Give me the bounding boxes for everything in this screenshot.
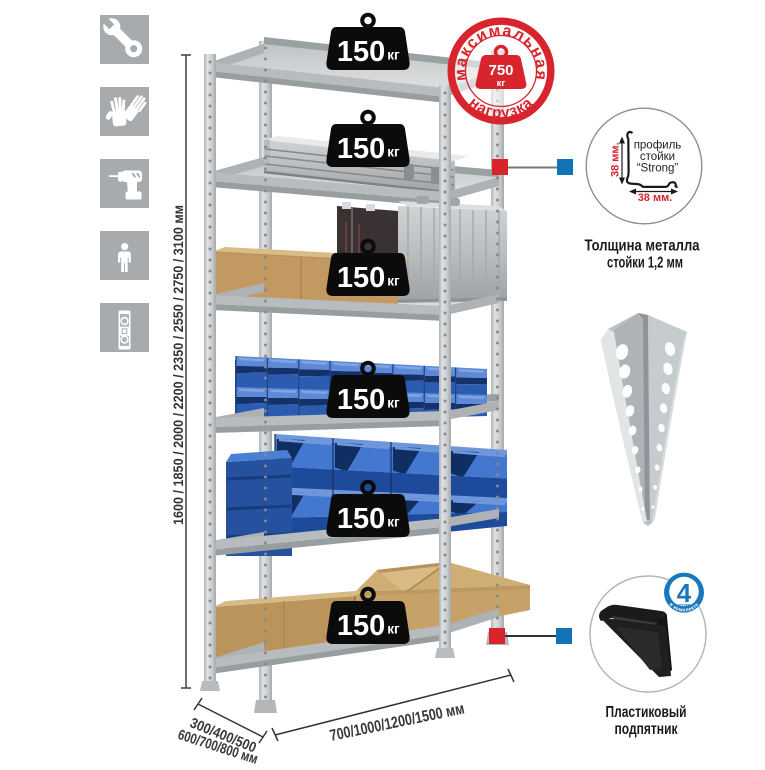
svg-text:1600 / 1850 / 2000 / 2200 / 23: 1600 / 1850 / 2000 / 2200 / 2350 / 2550 … — [170, 205, 186, 525]
svg-text:стойки: стойки — [640, 151, 675, 163]
svg-text:Пластиковый: Пластиковый — [606, 704, 687, 721]
svg-text:750: 750 — [488, 62, 513, 79]
svg-text:подпятник: подпятник — [615, 721, 678, 738]
svg-text:профиль: профиль — [634, 140, 682, 152]
svg-text:700/1000/1200/1500 мм: 700/1000/1200/1500 мм — [328, 700, 466, 744]
svg-text:38 мм.: 38 мм. — [638, 192, 673, 204]
svg-text:Толщина металла: Толщина металла — [585, 238, 700, 255]
svg-text:стойки 1,2 мм: стойки 1,2 мм — [607, 255, 683, 272]
svg-text:38 мм.: 38 мм. — [610, 142, 622, 177]
svg-text:кг: кг — [497, 78, 506, 89]
svg-text:“Strong”: “Strong” — [637, 163, 679, 175]
